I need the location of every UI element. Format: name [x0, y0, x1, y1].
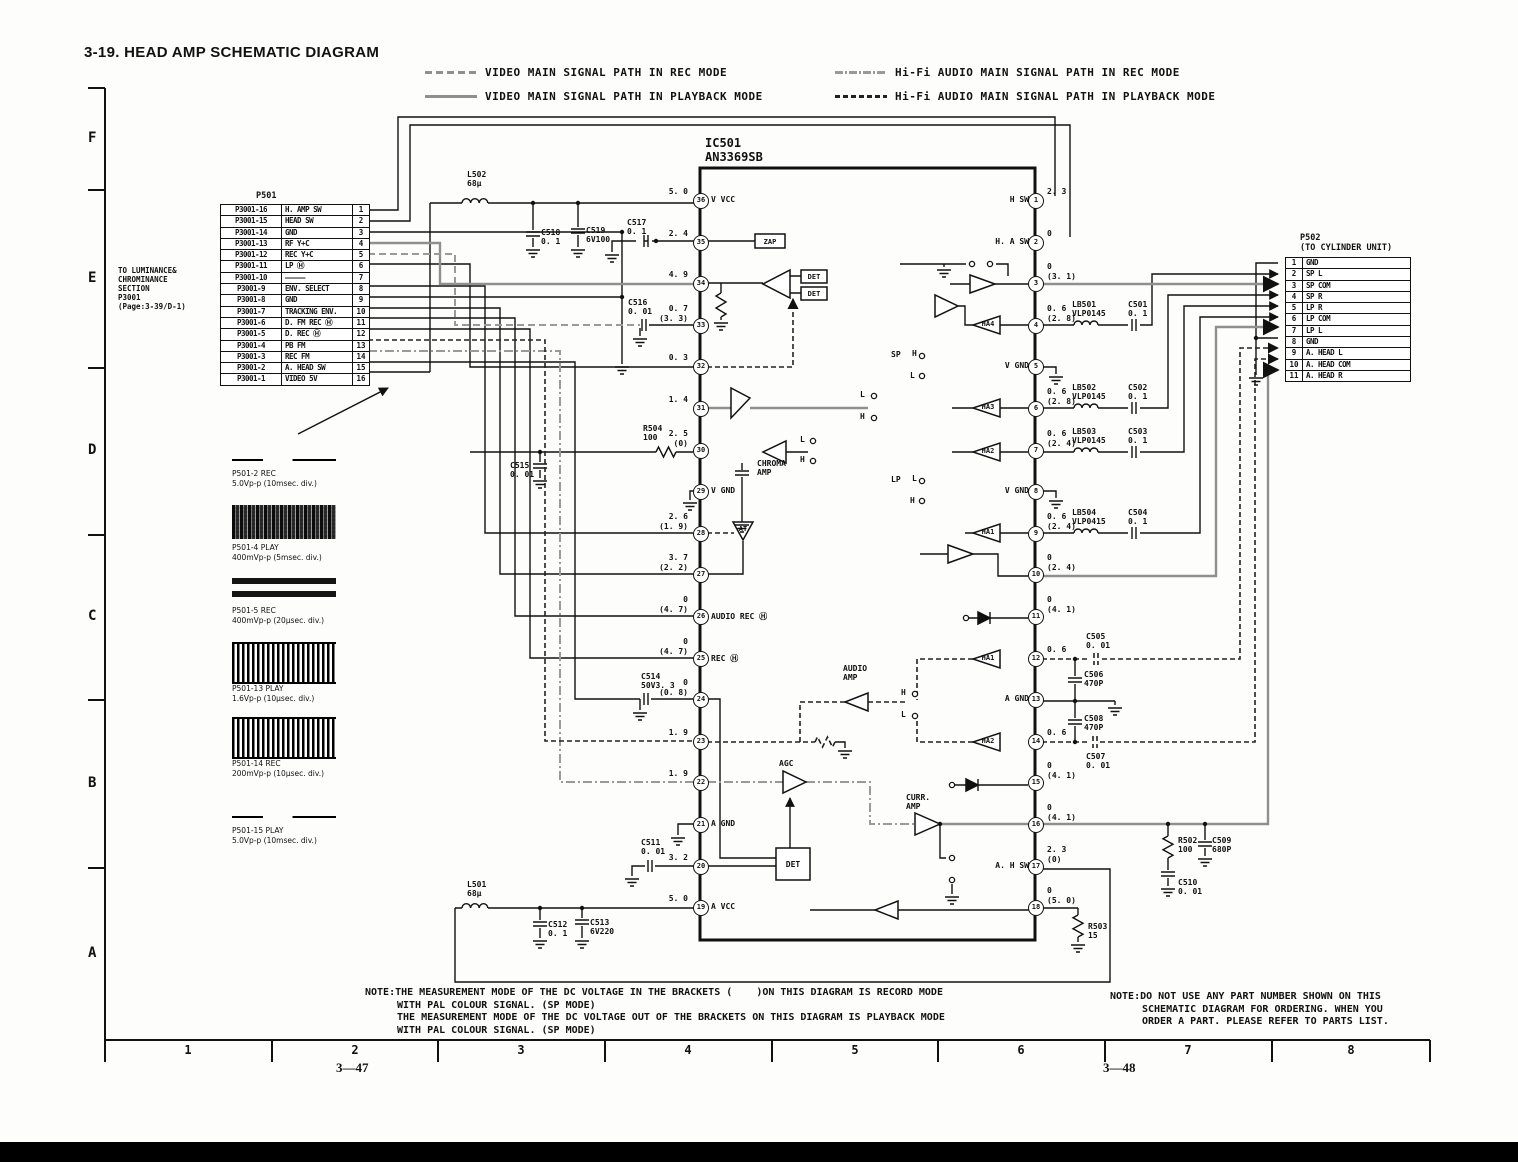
page-number-left: 3—47 — [336, 1060, 369, 1076]
waveform-name: P501-5 REC — [232, 606, 276, 615]
waveform-sine — [232, 642, 336, 684]
switch-h-label: H — [910, 496, 915, 505]
p501-row: P3001-16H. AMP SW1 — [221, 205, 369, 216]
p502-signal-cell: GND — [1303, 337, 1410, 347]
pin-voltage-pb-30: 2. 5 — [634, 429, 688, 438]
pin-voltage-pb-14: 0. 6 — [1047, 728, 1105, 737]
p502-signal-cell: LP COM — [1303, 314, 1410, 324]
audio-amp-label: AUDIO AMP — [843, 664, 867, 682]
legend-label: Hi-Fi AUDIO MAIN SIGNAL PATH IN REC MODE — [895, 66, 1180, 79]
p501-pin-cell: 8 — [353, 284, 369, 294]
part-c518: C5180. 1 — [541, 228, 560, 246]
p501-ref-cell: P3001-11 — [221, 261, 282, 271]
pin-voltage-pb-10: 0 — [1047, 553, 1105, 562]
pin-voltage-pb-2: 0 — [1047, 229, 1105, 238]
ic-pin-name-2: H. A SW — [943, 237, 1029, 246]
pin-voltage-pb-25: 0 — [634, 637, 688, 646]
p501-ref-cell: P3001-12 — [221, 250, 282, 260]
p502-pin-cell: 1 — [1286, 258, 1303, 268]
page-number-right: 3—48 — [1103, 1060, 1136, 1076]
part-r502: R502100 — [1178, 836, 1197, 854]
p501-ref-cell: P3001-10 — [221, 273, 282, 283]
pin-voltage-pb-11: 0 — [1047, 595, 1105, 604]
note-left-line: WITH PAL COLOUR SIGNAL. (SP MODE) — [365, 1000, 945, 1013]
p501-pin-cell: 16 — [353, 374, 369, 384]
p501-row: P3001-4PB FM13 — [221, 341, 369, 352]
ic-pin-7: 7 — [1028, 443, 1044, 459]
ic-pin-36: 36 — [693, 193, 709, 209]
pin-voltage-pb-35: 2. 4 — [634, 229, 688, 238]
ic-pin-11: 11 — [1028, 609, 1044, 625]
waveform-name: P501-4 PLAY — [232, 543, 279, 552]
p501-row: P3001-7TRACKING ENV.10 — [221, 307, 369, 318]
p501-pin-cell: 1 — [353, 205, 369, 215]
pin-voltage-pb-28: 2. 6 — [634, 512, 688, 521]
ic-pin-name-5: V GND — [943, 361, 1029, 370]
p501-row: P3001-5D. REC Ⓗ12 — [221, 329, 369, 340]
ic-pin-27: 27 — [693, 567, 709, 583]
p502-signal-cell: SP R — [1303, 292, 1410, 302]
p502-signal-cell: SP COM — [1303, 281, 1410, 291]
p501-row: P3001-14GND3 — [221, 228, 369, 239]
pin-voltage-pb-26: 0 — [634, 595, 688, 604]
pin-voltage-pb-7: 0. 6 — [1047, 429, 1105, 438]
p502-row: 2SP L — [1286, 269, 1410, 280]
grid-row-label-C: C — [88, 608, 96, 624]
note-right: NOTE:DO NOT USE ANY PART NUMBER SHOWN ON… — [1110, 991, 1389, 1029]
ic-pin-35: 35 — [693, 235, 709, 251]
pin-voltage-pb-18: 0 — [1047, 886, 1105, 895]
p501-row: P3001-11LP Ⓗ6 — [221, 261, 369, 272]
note-right-line: ORDER A PART. PLEASE REFER TO PARTS LIST… — [1110, 1016, 1389, 1029]
p501-ref-cell: P3001-9 — [221, 284, 282, 294]
ic-pin-25: 25 — [693, 651, 709, 667]
pin-voltage-pb-20: 3. 2 — [634, 853, 688, 862]
pin-voltage-rec-25: (4. 7) — [634, 647, 688, 656]
part-c506: C506470P — [1084, 670, 1103, 688]
p501-pin-cell: 12 — [353, 329, 369, 339]
ic-pin-3: 3 — [1028, 276, 1044, 292]
ic-pin-1: 1 — [1028, 193, 1044, 209]
pin-voltage-rec-28: (1. 9) — [634, 522, 688, 531]
p502-row: 10A. HEAD COM — [1286, 360, 1410, 371]
pin-voltage-pb-9: 0. 6 — [1047, 512, 1105, 521]
p502-pin-cell: 4 — [1286, 292, 1303, 302]
ic-pin-name-36: V VCC — [711, 195, 735, 204]
part-c509: C509680P — [1212, 836, 1231, 854]
p501-ref-cell: P3001-13 — [221, 239, 282, 249]
grid-col-label-2: 2 — [347, 1043, 363, 1057]
p501-signal-cell: H. AMP SW — [282, 205, 353, 215]
ic-pin-22: 22 — [693, 775, 709, 791]
ic-pin-12: 12 — [1028, 651, 1044, 667]
det-box-label: DET — [776, 860, 810, 869]
p501-signal-cell: A. HEAD SW — [282, 363, 353, 373]
part-c513: C5136V220 — [590, 918, 614, 936]
p501-pin-cell: 6 — [353, 261, 369, 271]
pin-voltage-rec-17: (0) — [1047, 855, 1105, 864]
ic-pin-17: 17 — [1028, 859, 1044, 875]
part-c519: C5196V100 — [586, 226, 610, 244]
p501-row: P3001-2A. HEAD SW15 — [221, 363, 369, 374]
switch-l-label: L — [901, 710, 906, 719]
grid-col-label-5: 5 — [847, 1043, 863, 1057]
ic-label: IC501 AN3369SB — [705, 136, 763, 164]
p502-row: 1GND — [1286, 258, 1410, 269]
p501-title: P501 — [256, 191, 276, 201]
p501-ref-cell: P3001-8 — [221, 295, 282, 305]
p501-row: P3001-10—————7 — [221, 273, 369, 284]
legend-key-line — [835, 71, 887, 74]
p501-ref-cell: P3001-6 — [221, 318, 282, 328]
ic-pin-2: 2 — [1028, 235, 1044, 251]
p501-signal-cell: ————— — [282, 273, 353, 283]
pin-voltage-pb-12: 0. 6 — [1047, 645, 1105, 654]
ic-pin-16: 16 — [1028, 817, 1044, 833]
grid-col-label-6: 6 — [1013, 1043, 1029, 1057]
pin-voltage-pb-4: 0. 6 — [1047, 304, 1105, 313]
pin-voltage-rec-16: (4. 1) — [1047, 813, 1105, 822]
ic-pin-15: 15 — [1028, 775, 1044, 791]
legend-item: VIDEO MAIN SIGNAL PATH IN PLAYBACK MODE — [425, 90, 763, 103]
pin-voltage-pb-33: 0. 7 — [634, 304, 688, 313]
legend-item: Hi-Fi AUDIO MAIN SIGNAL PATH IN REC MODE — [835, 66, 1180, 79]
p501-pin-cell: 15 — [353, 363, 369, 373]
waveform-name: P501-15 PLAY — [232, 826, 283, 835]
p502-row: 4SP R — [1286, 292, 1410, 303]
pin-voltage-pb-16: 0 — [1047, 803, 1105, 812]
legend-label: VIDEO MAIN SIGNAL PATH IN PLAYBACK MODE — [485, 90, 763, 103]
p502-pin-cell: 10 — [1286, 360, 1303, 370]
ic-pin-10: 10 — [1028, 567, 1044, 583]
p501-signal-cell: VIDEO 5V — [282, 374, 353, 384]
ha2-amp-label: HA2 — [977, 447, 999, 455]
waveform-spec: 200mVp-p (10µsec. div.) — [232, 769, 324, 778]
p501-row: P3001-12REC Y+C5 — [221, 250, 369, 261]
pin-voltage-pb-3: 0 — [1047, 262, 1105, 271]
p501-pin-cell: 3 — [353, 228, 369, 238]
part-c504: C5040. 1 — [1128, 508, 1147, 526]
p501-pin-cell: 4 — [353, 239, 369, 249]
grid-row-label-A: A — [88, 945, 96, 961]
ic-pin-24: 24 — [693, 692, 709, 708]
pin-voltage-pb-31: 1. 4 — [634, 395, 688, 404]
pin-voltage-rec-10: (2. 4) — [1047, 563, 1105, 572]
p502-pin-cell: 3 — [1286, 281, 1303, 291]
p501-signal-cell: D. FM REC Ⓗ — [282, 318, 353, 328]
legend-key-line — [425, 71, 477, 74]
schematic-canvas: 3-19. HEAD AMP SCHEMATIC DIAGRAM — [0, 0, 1518, 1162]
p501-row: P3001-6D. FM REC Ⓗ11 — [221, 318, 369, 329]
p502-signal-cell: GND — [1303, 258, 1410, 268]
p501-ref-cell: P3001-1 — [221, 374, 282, 384]
pin-voltage-pb-32: 0. 3 — [634, 353, 688, 362]
waveform-spec: 5.0Vp-p (10msec. div.) — [232, 479, 317, 488]
p502-pin-cell: 2 — [1286, 269, 1303, 279]
p502-row: 3SP COM — [1286, 281, 1410, 292]
ic-pin-4: 4 — [1028, 318, 1044, 334]
p501-pin-cell: 10 — [353, 307, 369, 317]
waveform-noise — [232, 505, 336, 539]
ic-pin-8: 8 — [1028, 484, 1044, 500]
p501-signal-cell: ENV. SELECT — [282, 284, 353, 294]
switch-l-label: L — [800, 435, 805, 444]
p502-pin-cell: 5 — [1286, 303, 1303, 313]
waveform-bands — [232, 578, 336, 602]
p502-signal-cell: SP L — [1303, 269, 1410, 279]
switch-h-label: H — [901, 688, 906, 697]
waveform-name: P501-13 PLAY — [232, 684, 283, 693]
p501-signal-cell: REC FM — [282, 352, 353, 362]
ic-ref: IC501 — [705, 136, 741, 150]
legend-item: VIDEO MAIN SIGNAL PATH IN REC MODE — [425, 66, 727, 79]
ic-pin-21: 21 — [693, 817, 709, 833]
ic-pin-9: 9 — [1028, 526, 1044, 542]
part-c512: C5120. 1 — [548, 920, 567, 938]
p501-pin-cell: 5 — [353, 250, 369, 260]
p501-signal-cell: GND — [282, 295, 353, 305]
ic-pin-30: 30 — [693, 443, 709, 459]
part-c501: C5010. 1 — [1128, 300, 1147, 318]
p501-ref-cell: P3001-15 — [221, 216, 282, 226]
legend-label: Hi-Fi AUDIO MAIN SIGNAL PATH IN PLAYBACK… — [895, 90, 1216, 103]
note-left: NOTE:THE MEASUREMENT MODE OF THE DC VOLT… — [365, 987, 945, 1037]
ic-pin-name-21: A GND — [711, 819, 735, 828]
waveform-spec: 5.0Vp-p (10msec. div.) — [232, 836, 317, 845]
ic-pin-name-13: A GND — [943, 694, 1029, 703]
p501-signal-cell: HEAD SW — [282, 216, 353, 226]
part-c503: C5030. 1 — [1128, 427, 1147, 445]
pin-voltage-rec-18: (5. 0) — [1047, 896, 1105, 905]
at-amp-label: AT — [735, 525, 751, 533]
p502-signal-cell: A. HEAD COM — [1303, 360, 1410, 370]
grid-row-label-E: E — [88, 270, 96, 286]
ic-pin-32: 32 — [693, 359, 709, 375]
part-c515: C5150. 01 — [510, 461, 534, 479]
p501-row: P3001-15HEAD SW2 — [221, 216, 369, 227]
lp-switch-label: LP — [891, 475, 901, 484]
ic-pin-20: 20 — [693, 859, 709, 875]
pin-voltage-pb-36: 5. 0 — [634, 187, 688, 196]
pin-voltage-pb-6: 0. 6 — [1047, 387, 1105, 396]
p501-signal-cell: TRACKING ENV. — [282, 307, 353, 317]
pin-voltage-rec-4: (2. 8) — [1047, 314, 1105, 323]
p501-signal-cell: D. REC Ⓗ — [282, 329, 353, 339]
p501-pin-cell: 9 — [353, 295, 369, 305]
pin-voltage-rec-3: (3. 1) — [1047, 272, 1105, 281]
p501-signal-cell: GND — [282, 228, 353, 238]
ha3-amp-label: HA3 — [977, 403, 999, 411]
ic-pin-23: 23 — [693, 734, 709, 750]
pin-voltage-rec-30: (0) — [634, 439, 688, 448]
waveform-flat — [232, 455, 336, 465]
p502-pin-cell: 11 — [1286, 371, 1303, 381]
pin-voltage-rec-7: (2. 4) — [1047, 439, 1105, 448]
p501-row: P3001-9ENV. SELECT8 — [221, 284, 369, 295]
zap-box-label: ZAP — [755, 238, 785, 246]
p501-ref-cell: P3001-4 — [221, 341, 282, 351]
p502-pin-cell: 8 — [1286, 337, 1303, 347]
p501-signal-cell: REC Y+C — [282, 250, 353, 260]
waveform-name: P501-2 REC — [232, 469, 276, 478]
part-l502: L50268µ — [467, 170, 486, 188]
ic-pin-name-19: A VCC — [711, 902, 735, 911]
note-right-line: SCHEMATIC DIAGRAM FOR ORDERING. WHEN YOU — [1110, 1004, 1389, 1017]
ic-pin-13: 13 — [1028, 692, 1044, 708]
p501-pin-cell: 14 — [353, 352, 369, 362]
p502-row: 7LP L — [1286, 326, 1410, 337]
p502-row: 11A. HEAD R — [1286, 371, 1410, 381]
waveform-spec: 1.6Vp-p (10µsec. div.) — [232, 694, 314, 703]
switch-h-label: H — [912, 349, 917, 358]
grid-col-label-4: 4 — [680, 1043, 696, 1057]
note-left-line: NOTE:THE MEASUREMENT MODE OF THE DC VOLT… — [365, 987, 945, 1000]
p501-row: P3001-1VIDEO 5V16 — [221, 374, 369, 384]
p501-pin-cell: 11 — [353, 318, 369, 328]
waveform-flat — [232, 812, 336, 822]
curr-amp-label: CURR. AMP — [906, 793, 930, 811]
p502-pin-cell: 6 — [1286, 314, 1303, 324]
pin-voltage-rec-24: (0. 8) — [634, 688, 688, 697]
ic-pin-name-8: V GND — [943, 486, 1029, 495]
ic-pin-14: 14 — [1028, 734, 1044, 750]
pin-voltage-pb-19: 5. 0 — [634, 894, 688, 903]
grid-row-label-B: B — [88, 775, 96, 791]
p501-pin-cell: 7 — [353, 273, 369, 283]
p502-signal-cell: A. HEAD R — [1303, 371, 1410, 381]
legend-item: Hi-Fi AUDIO MAIN SIGNAL PATH IN PLAYBACK… — [835, 90, 1216, 103]
luminance-note: TO LUMINANCE& CHROMINANCE SECTION P3001 … — [118, 266, 186, 311]
det-box-label: DET — [801, 290, 827, 298]
bottom-bar — [0, 1142, 1518, 1162]
p501-ref-cell: P3001-3 — [221, 352, 282, 362]
part-c510: C5100. 01 — [1178, 878, 1202, 896]
pin-voltage-pb-24: 0 — [634, 678, 688, 687]
ic-pin-28: 28 — [693, 526, 709, 542]
ha1-amp-label: HA1 — [977, 654, 999, 662]
legend-label: VIDEO MAIN SIGNAL PATH IN REC MODE — [485, 66, 727, 79]
ic-pin-5: 5 — [1028, 359, 1044, 375]
pin-voltage-pb-23: 1. 9 — [634, 728, 688, 737]
pin-voltage-pb-34: 4. 9 — [634, 270, 688, 279]
det-box-label: DET — [801, 273, 827, 281]
switch-l-label: L — [910, 371, 915, 380]
switch-l-label: L — [860, 390, 865, 399]
pin-voltage-rec-6: (2. 8) — [1047, 397, 1105, 406]
p501-table: P3001-16H. AMP SW1P3001-15HEAD SW2P3001-… — [220, 204, 370, 386]
ic-pin-name-29: V GND — [711, 486, 735, 495]
legend-key-line — [835, 95, 887, 98]
ic-pin-18: 18 — [1028, 900, 1044, 916]
ha2-amp-label: HA2 — [977, 737, 999, 745]
p501-ref-cell: P3001-2 — [221, 363, 282, 373]
p502-row: 5LP R — [1286, 303, 1410, 314]
grid-col-label-8: 8 — [1343, 1043, 1359, 1057]
p502-pin-cell: 7 — [1286, 326, 1303, 336]
pin-voltage-rec-26: (4. 7) — [634, 605, 688, 614]
ha4-amp-label: HA4 — [977, 320, 999, 328]
note-right-line: NOTE:DO NOT USE ANY PART NUMBER SHOWN ON… — [1110, 991, 1389, 1004]
pin-voltage-pb-22: 1. 9 — [634, 769, 688, 778]
pin-voltage-rec-27: (2. 2) — [634, 563, 688, 572]
grid-row-label-F: F — [88, 130, 96, 146]
p501-ref-cell: P3001-7 — [221, 307, 282, 317]
symbols — [731, 234, 1000, 919]
ic-pin-name-17: A. H SW — [943, 861, 1029, 870]
p502-row: 8GND — [1286, 337, 1410, 348]
p501-signal-cell: PB FM — [282, 341, 353, 351]
waveform-spec: 400mVp-p (20µsec. div.) — [232, 616, 324, 625]
pin-voltage-rec-11: (4. 1) — [1047, 605, 1105, 614]
agc-amp-label: AGC — [779, 759, 793, 768]
pin-voltage-pb-1: 2. 3 — [1047, 187, 1105, 196]
note-left-line: WITH PAL COLOUR SIGNAL. (SP MODE) — [365, 1025, 945, 1038]
p502-signal-cell: LP R — [1303, 303, 1410, 313]
ic-pin-6: 6 — [1028, 401, 1044, 417]
p502-row: 6LP COM — [1286, 314, 1410, 325]
grid-col-label-1: 1 — [180, 1043, 196, 1057]
ic-pin-31: 31 — [693, 401, 709, 417]
note-left-line: THE MEASUREMENT MODE OF THE DC VOLTAGE O… — [365, 1012, 945, 1025]
switch-l-label: L — [912, 474, 917, 483]
p502-title: P502 (TO CYLINDER UNIT) — [1300, 233, 1392, 253]
legend-key-line — [425, 95, 477, 98]
p502-signal-cell: LP L — [1303, 326, 1410, 336]
p501-pin-cell: 2 — [353, 216, 369, 226]
sp-switch-label: SP — [891, 350, 901, 359]
p502-table: 1GND2SP L3SP COM4SP R5LP R6LP COM7LP L8G… — [1285, 257, 1411, 382]
ic-pin-26: 26 — [693, 609, 709, 625]
ic-pin-29: 29 — [693, 484, 709, 500]
p501-ref-cell: P3001-5 — [221, 329, 282, 339]
grid-col-label-3: 3 — [513, 1043, 529, 1057]
p501-row: P3001-13RF Y+C4 — [221, 239, 369, 250]
p501-pin-cell: 13 — [353, 341, 369, 351]
p501-signal-cell: LP Ⓗ — [282, 261, 353, 271]
ic-pin-34: 34 — [693, 276, 709, 292]
p501-row: P3001-3REC FM14 — [221, 352, 369, 363]
part-r503: R50315 — [1088, 922, 1107, 940]
pin-voltage-pb-17: 2. 3 — [1047, 845, 1105, 854]
p501-signal-cell: RF Y+C — [282, 239, 353, 249]
ic-pin-name-1: H SW — [943, 195, 1029, 204]
p502-pin-cell: 9 — [1286, 348, 1303, 358]
pin-voltage-pb-15: 0 — [1047, 761, 1105, 770]
switch-h-label: H — [800, 455, 805, 464]
wires-hifi-rec — [368, 351, 915, 824]
switch-h-label: H — [860, 412, 865, 421]
ic-pin-name-25: REC Ⓗ — [711, 653, 738, 664]
grid-row-label-D: D — [88, 442, 96, 458]
chroma-amp-label: CHROMA AMP — [757, 459, 786, 477]
p501-row: P3001-8GND9 — [221, 295, 369, 306]
part-c502: C5020. 1 — [1128, 383, 1147, 401]
ic-pin-19: 19 — [693, 900, 709, 916]
ic-pin-name-26: AUDIO REC Ⓗ — [711, 611, 767, 622]
grid-col-label-7: 7 — [1180, 1043, 1196, 1057]
part-l501: L50168µ — [467, 880, 486, 898]
p501-ref-cell: P3001-16 — [221, 205, 282, 215]
ha1-amp-label: HA1 — [977, 528, 999, 536]
ic-part-number: AN3369SB — [705, 150, 763, 164]
p502-signal-cell: A. HEAD L — [1303, 348, 1410, 358]
p501-ref-cell: P3001-14 — [221, 228, 282, 238]
waveform-name: P501-14 REC — [232, 759, 281, 768]
ic-pin-33: 33 — [693, 318, 709, 334]
waveform-spec: 400mVp-p (5msec. div.) — [232, 553, 322, 562]
pin-voltage-rec-9: (2. 4) — [1047, 522, 1105, 531]
waveform-sine — [232, 717, 336, 759]
